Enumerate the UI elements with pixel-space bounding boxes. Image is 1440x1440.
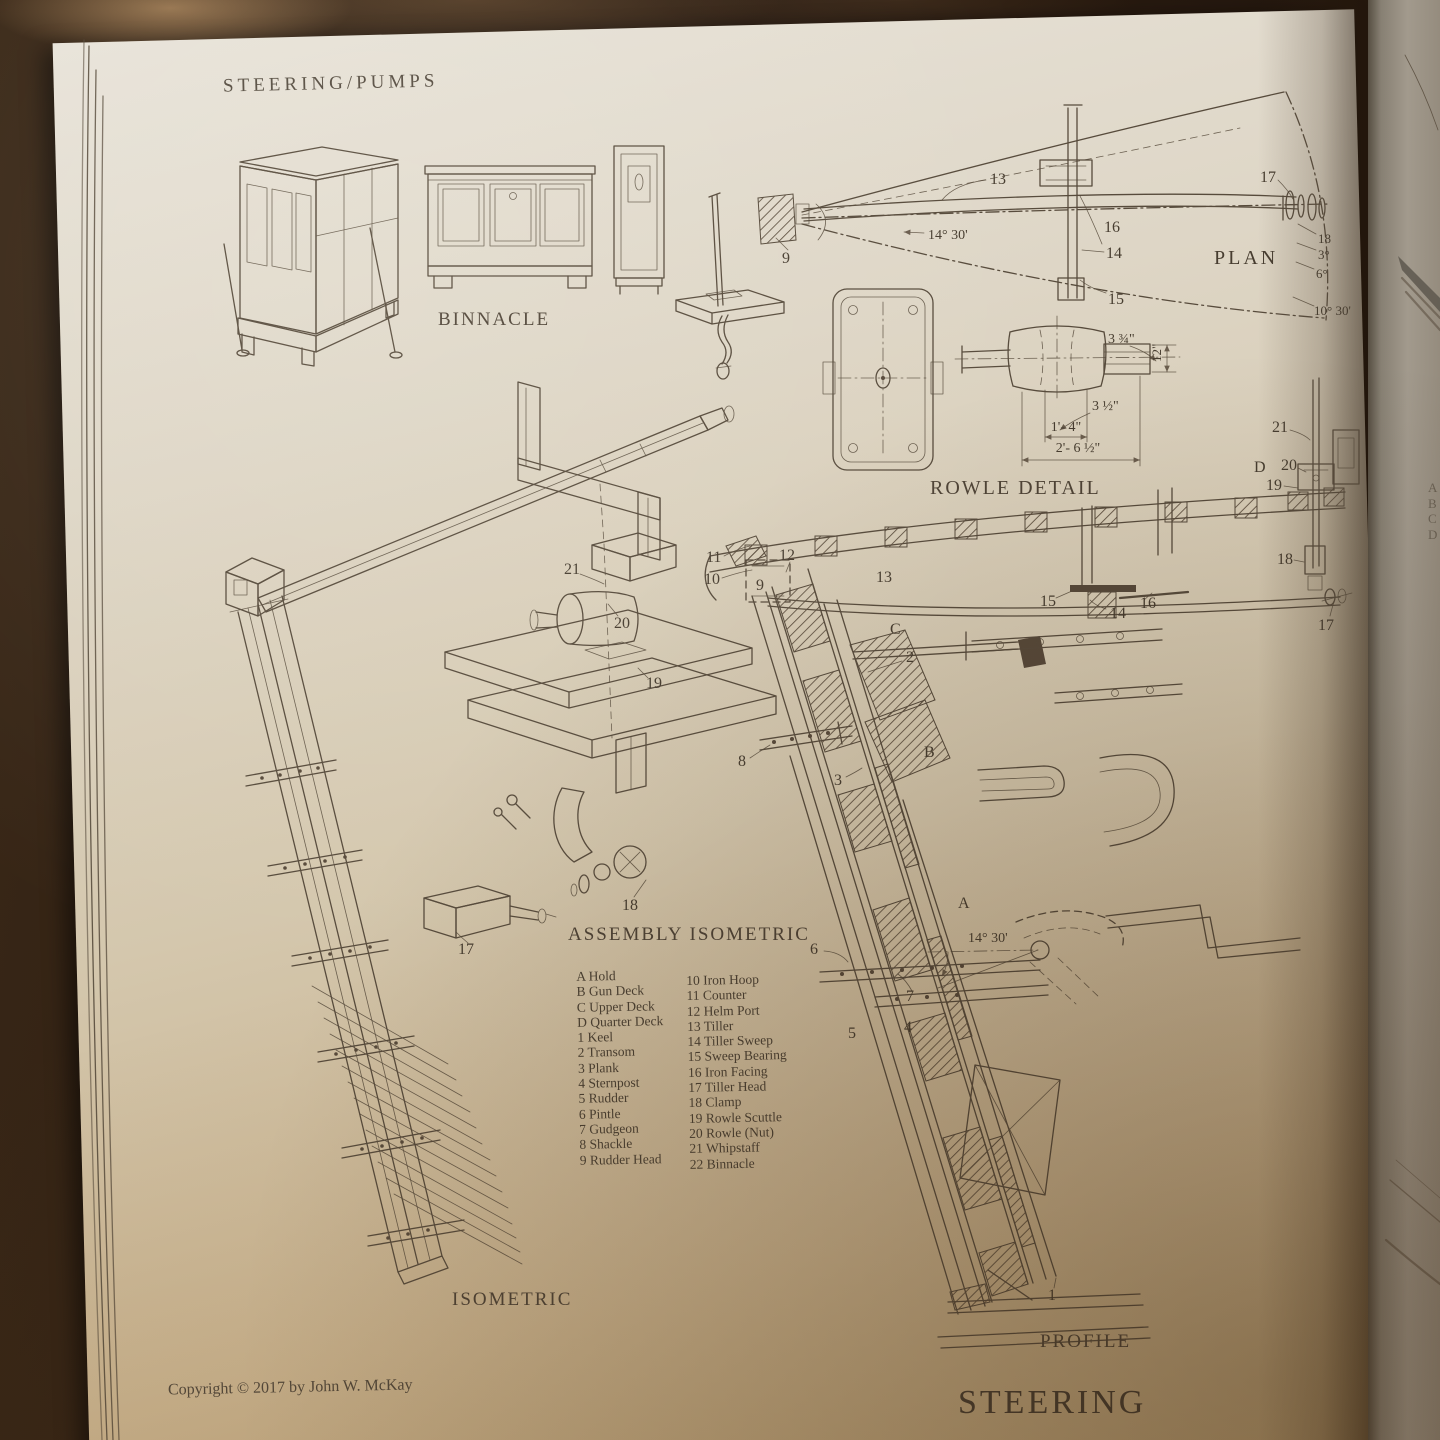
technical-drawing-art: 21 20 19 18 17: [0, 0, 1440, 1440]
legend-item: 9 Rudder Head: [580, 1151, 666, 1168]
rowle-dim-shaft: 3 ¾": [1108, 332, 1135, 347]
profile-callout-2: 2: [906, 649, 914, 666]
legend-item: 22 Binnacle: [690, 1155, 789, 1172]
isometric-label: ISOMETRIC: [452, 1289, 572, 1311]
right-page-letter-b: B: [1428, 496, 1437, 511]
legend-item: A Hold: [576, 967, 662, 984]
legend-item: 3 Plank: [578, 1059, 664, 1076]
plan-label: PLAN: [1214, 247, 1278, 269]
photo-of-book-page: 21 20 19 18 17: [0, 0, 1440, 1440]
plan-callout-9: 9: [782, 250, 790, 267]
plan-callout-17: 17: [1260, 169, 1276, 186]
legend-column-2: 10 Iron Hoop 11 Counter 12 Helm Port 13 …: [686, 971, 789, 1172]
profile-callout-13: 13: [876, 569, 892, 586]
plan-view-drawing: 13 9 14° 30' 16 14 15 17 18 3° 6° 10° 30…: [758, 92, 1351, 320]
profile-callout-12: 12: [779, 547, 795, 564]
binnacle-front-drawing: [425, 166, 595, 288]
profile-callout-3: 3: [834, 772, 842, 789]
gutter-callout-20: 20: [1281, 457, 1297, 474]
profile-callout-6: 6: [810, 941, 818, 958]
plan-angle-14-30: 14° 30': [928, 228, 968, 243]
assembly-callout-17: 17: [458, 941, 474, 958]
gutter-callout-19: 19: [1266, 477, 1282, 494]
legend-item: 15 Sweep Bearing: [688, 1048, 787, 1065]
plan-callout-18: 18: [1318, 231, 1331, 246]
assembly-callout-21: 21: [564, 561, 580, 578]
profile-callout-10: 10: [704, 571, 720, 588]
plan-callout-13: 13: [990, 171, 1006, 188]
rowle-detail-drawing: 3 ¾" 12" 3 ½" 1'- 4" 2'- 6 ½": [823, 289, 1180, 470]
legend-item: 5 Rudder: [578, 1090, 664, 1107]
right-page-letter-c: C: [1428, 511, 1437, 526]
rowle-dim-overall: 2'- 6 ½": [1056, 441, 1100, 456]
legend-item: 4 Sternpost: [578, 1074, 664, 1091]
plan-angle-6: 6°: [1316, 266, 1328, 281]
right-page-letter-d: D: [1428, 527, 1437, 542]
profile-callout-9: 9: [756, 577, 764, 594]
legend-item: 1 Keel: [577, 1028, 663, 1045]
plan-angle-10-30: 10° 30': [1314, 303, 1351, 318]
profile-zone-b: B: [924, 744, 935, 761]
binnacle-isometric-drawing: [224, 147, 402, 366]
plan-callout-16: 16: [1104, 219, 1120, 236]
legend-item: 20 Rowle (Nut): [689, 1124, 788, 1141]
plan-angle-3: 3°: [1318, 247, 1330, 262]
legend-item: 2 Transom: [578, 1044, 664, 1061]
rowle-detail-label: ROWLE DETAIL: [930, 477, 1101, 500]
legend-item: 6 Pintle: [579, 1105, 665, 1122]
profile-angle-14-30: 14° 30': [968, 931, 1008, 946]
profile-callout-4: 4: [904, 1019, 912, 1036]
legend-item: B Gun Deck: [576, 982, 662, 999]
profile-callout-15: 15: [1040, 593, 1056, 610]
legend-item: C Upper Deck: [577, 998, 663, 1015]
profile-label: PROFILE: [1040, 1331, 1131, 1353]
plan-callout-14: 14: [1106, 245, 1122, 262]
gutter-callout-21: 21: [1272, 419, 1288, 436]
gutter-zone-d: D: [1254, 459, 1266, 476]
rowle-dim-inner: 1'- 4": [1051, 420, 1081, 435]
profile-callout-16: 16: [1140, 595, 1156, 612]
assembly-callout-19: 19: [646, 675, 662, 692]
rowle-dim-diameter: 12": [1149, 344, 1164, 362]
page-stack-edges: [82, 40, 119, 1440]
rowle-dim-waist: 3 ½": [1092, 399, 1119, 414]
profile-callout-7: 7: [906, 988, 914, 1005]
gutter-assembly-drawing: 21 D 20 19 18 17: [1254, 378, 1359, 634]
profile-callout-14: 14: [1110, 605, 1126, 622]
right-page-letter-a: A: [1428, 480, 1438, 495]
assembly-isometric-label: ASSEMBLY ISOMETRIC: [568, 924, 810, 946]
page-title: STEERING: [958, 1384, 1146, 1422]
profile-callout-1: 1: [1048, 1287, 1056, 1304]
binnacle-side-drawing: [614, 146, 664, 294]
rudder-isometric-drawing: [226, 558, 522, 1284]
legend-item: 7 Gudgeon: [579, 1120, 665, 1137]
legend-item: 8 Shackle: [579, 1135, 665, 1152]
binnacle-label: BINNACLE: [438, 309, 550, 331]
plan-callout-15: 15: [1108, 291, 1124, 308]
right-page-marks: A B C D: [1386, 55, 1440, 1284]
legend-column-1: A Hold B Gun Deck C Upper Deck D Quarter…: [576, 967, 666, 1167]
profile-callout-11: 11: [706, 549, 721, 566]
profile-view-drawing: 11 12 10 9 13 15 14 16 C 2 B 8 3 A 6 7 5…: [704, 488, 1345, 1348]
profile-zone-a: A: [958, 895, 970, 912]
gutter-callout-18: 18: [1277, 551, 1293, 568]
assembly-callout-20: 20: [614, 615, 630, 632]
gutter-callout-17: 17: [1318, 617, 1334, 634]
legend-item: D Quarter Deck: [577, 1013, 663, 1030]
profile-callout-5: 5: [848, 1025, 856, 1042]
assembly-callout-18: 18: [622, 897, 638, 914]
profile-zone-c: C: [890, 621, 901, 638]
profile-callout-8: 8: [738, 753, 746, 770]
